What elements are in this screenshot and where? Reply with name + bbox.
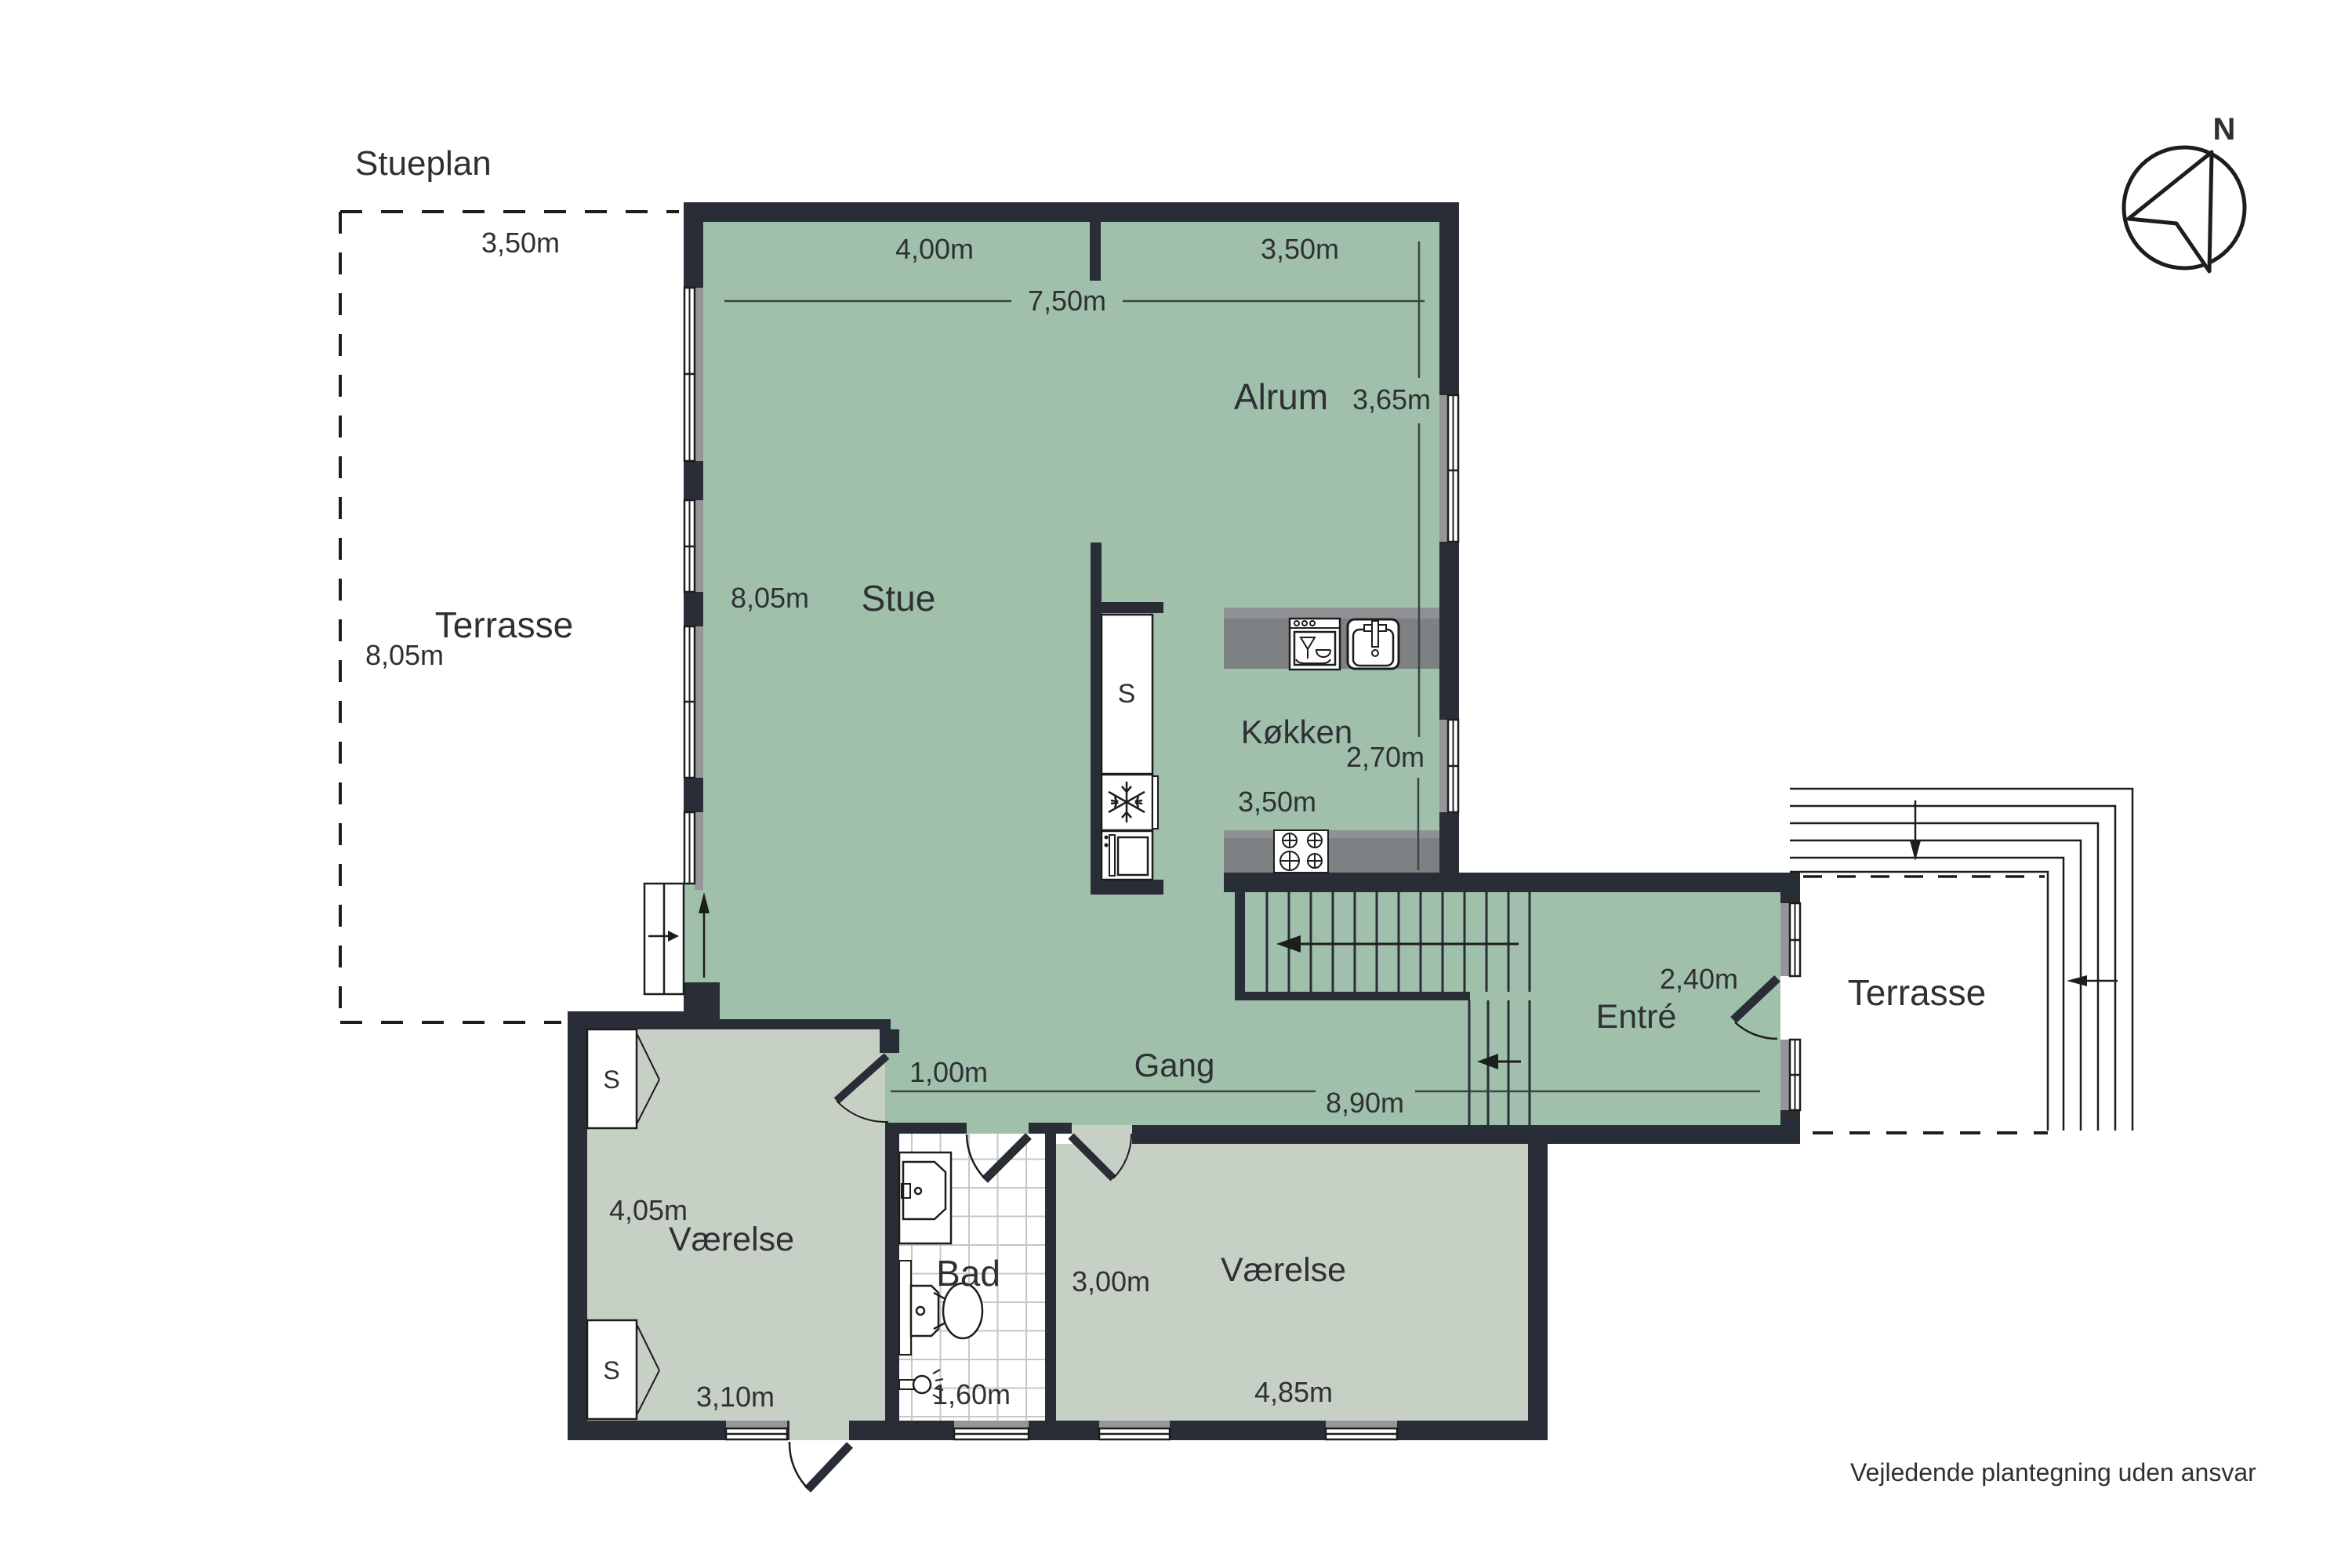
svg-text:Terrasse: Terrasse	[1848, 972, 1986, 1013]
svg-text:N: N	[2213, 112, 2236, 147]
svg-text:Alrum: Alrum	[1234, 376, 1328, 417]
svg-text:Bad: Bad	[936, 1253, 1000, 1294]
svg-text:4,85m: 4,85m	[1254, 1376, 1333, 1408]
svg-text:S: S	[1118, 679, 1136, 709]
svg-text:Entré: Entré	[1596, 998, 1677, 1036]
svg-text:Værelse: Værelse	[669, 1221, 794, 1258]
svg-text:3,50m: 3,50m	[1261, 233, 1339, 265]
svg-text:Gang: Gang	[1134, 1047, 1215, 1083]
svg-text:3,50m: 3,50m	[481, 227, 560, 259]
svg-text:Stueplan: Stueplan	[355, 144, 492, 183]
svg-text:7,50m: 7,50m	[1028, 285, 1106, 317]
svg-text:1,60m: 1,60m	[932, 1378, 1011, 1410]
svg-text:4,00m: 4,00m	[895, 233, 974, 265]
svg-text:Vejledende plantegning uden an: Vejledende plantegning uden ansvar	[1850, 1458, 2256, 1486]
svg-text:8,90m: 8,90m	[1326, 1087, 1404, 1119]
svg-text:S: S	[603, 1356, 619, 1385]
svg-text:2,40m: 2,40m	[1660, 963, 1738, 995]
svg-text:Stue: Stue	[862, 578, 936, 619]
svg-text:Terrasse: Terrasse	[435, 604, 573, 645]
svg-text:1,00m: 1,00m	[909, 1056, 988, 1088]
svg-text:8,05m: 8,05m	[365, 639, 444, 671]
svg-text:4,05m: 4,05m	[609, 1194, 688, 1226]
svg-text:Værelse: Værelse	[1221, 1251, 1346, 1289]
svg-text:3,00m: 3,00m	[1072, 1265, 1150, 1298]
svg-text:S: S	[603, 1065, 619, 1094]
svg-text:3,50m: 3,50m	[1238, 786, 1316, 818]
svg-text:3,65m: 3,65m	[1352, 383, 1431, 416]
svg-text:2,70m: 2,70m	[1346, 741, 1425, 773]
svg-text:8,05m: 8,05m	[731, 582, 809, 614]
svg-text:3,10m: 3,10m	[696, 1381, 775, 1413]
svg-text:Køkken: Køkken	[1241, 713, 1352, 750]
